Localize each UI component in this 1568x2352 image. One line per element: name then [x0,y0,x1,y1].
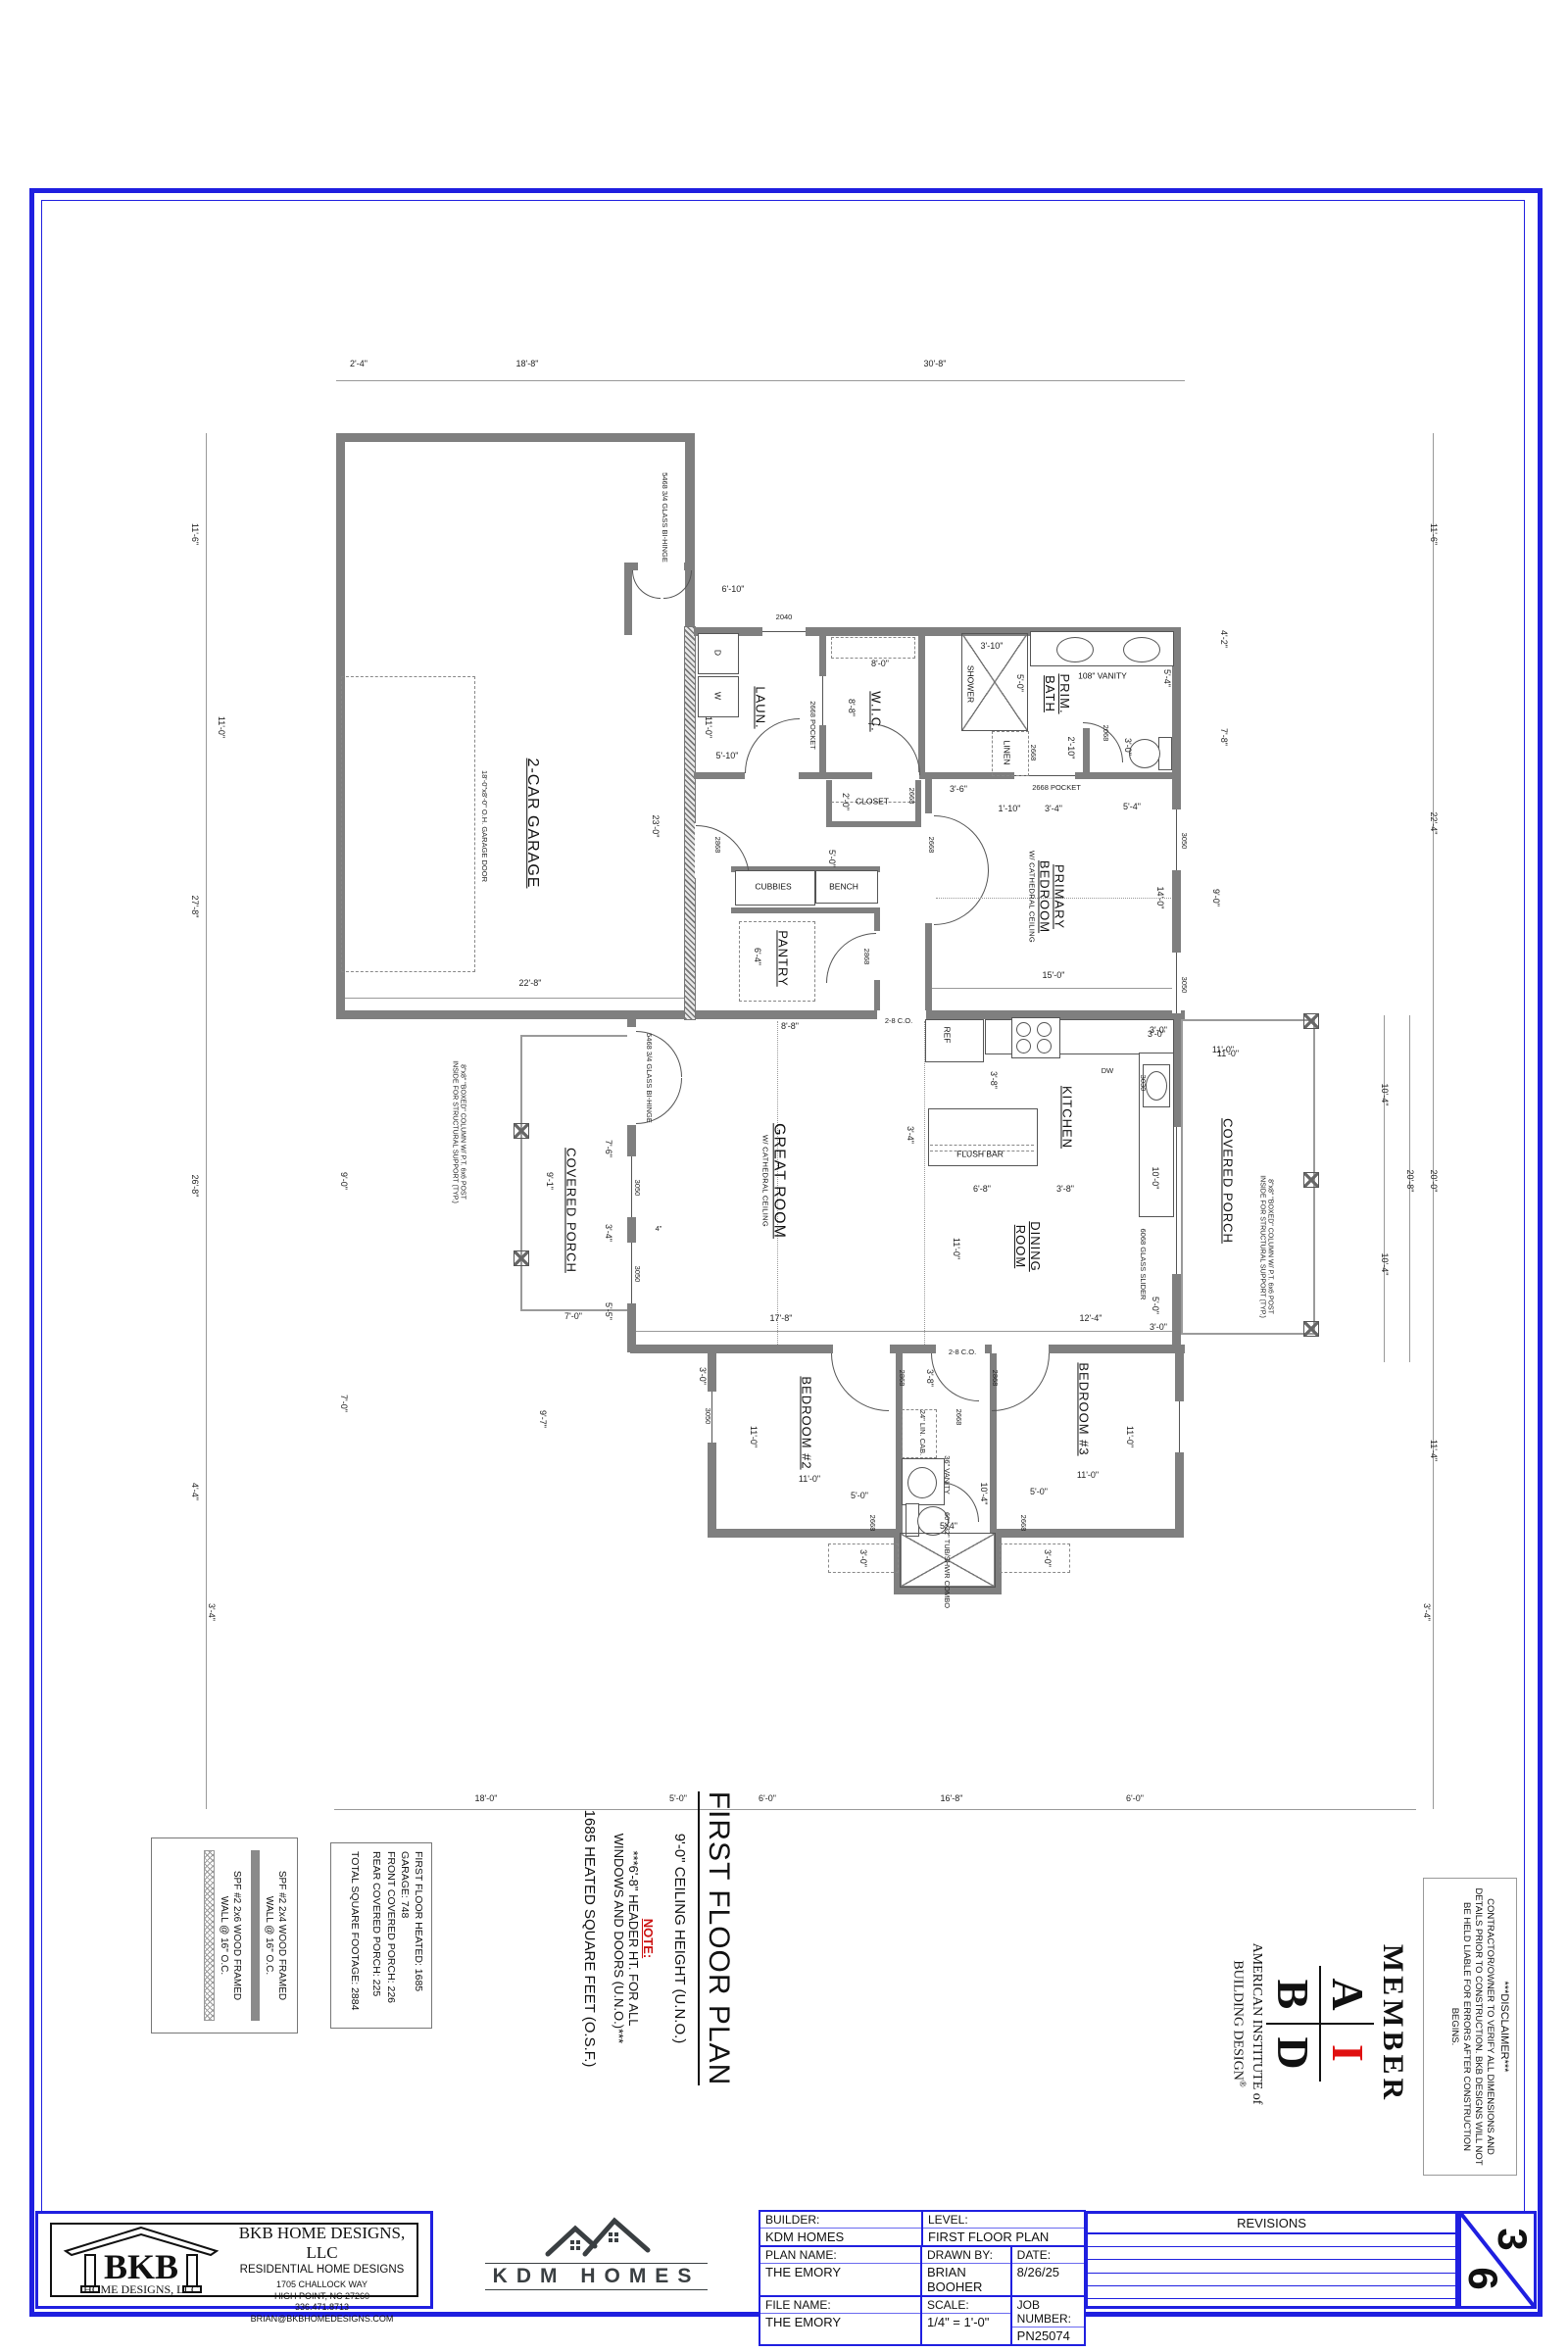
dim-label: 3'-8" [924,1369,934,1387]
fixture-label: D [712,650,721,656]
burner [1016,1022,1031,1037]
dim-line [336,380,1185,381]
legend-swatch-2x6 [204,1850,215,2021]
room-label: BEDROOM #3 [1076,1362,1091,1455]
door-opening [833,1345,890,1353]
door-swing [831,1353,889,1411]
sink [907,1467,937,1498]
dim-label: 6'-0" [759,1794,776,1804]
svg-text:HOME DESIGNS, LLC: HOME DESIGNS, LLC [83,2282,199,2296]
dim-label: 5'-0" [1150,1297,1159,1314]
sqft-line: FRONT COVERED PORCH: 226 [383,1851,397,2020]
ceiling-break [924,1021,925,1345]
room-label: 2-CAR GARAGE [523,759,541,889]
drawn-by-label: DRAWN BY: [922,2247,1010,2264]
registered-mark: ® [1238,2081,1248,2087]
dim-label: 5'-0" [826,850,836,867]
dim-label: 3050 [1180,833,1188,850]
revision-row [1088,2274,1455,2286]
revision-row [1088,2260,1455,2273]
dim-label: 2040 [776,613,793,621]
legend-item: SPF #2 2x6 WOOD FRAMEDWALL @ 16" O.C. [204,1850,242,2021]
revision-row [1088,2286,1455,2299]
dim-label: 8'-8" [781,1022,799,1032]
dim-label: 2668 [907,788,915,805]
door-opening [745,772,799,779]
sheet-number-current: 3 [1489,2228,1536,2250]
dim-label: 14'-0" [1154,887,1164,909]
bkb-tagline: RESIDENTIAL HOME DESIGNS [229,2264,415,2276]
fixture-label: FLUSH BAR [956,1150,1004,1158]
burner [1016,1039,1031,1053]
rear-stoop [1000,1543,1070,1573]
aibd-letter-grid: AI BD [1266,1966,1374,2082]
dim-label: 4" [656,1225,662,1233]
sheet-number-total: 6 [1459,2267,1506,2289]
dim-label: 7'-0" [564,1312,582,1322]
dim-label: 3'-4" [1421,1603,1431,1621]
burner [1037,1039,1052,1053]
dim-label: 2668 POCKET [1032,784,1081,792]
wall [685,433,695,629]
dim-label: 6'-4" [752,948,761,965]
revision-row [1088,2234,1455,2247]
dim-label: 2'-10" [1065,737,1075,759]
window [1175,1401,1184,1452]
disclaimer-title: ***DISCLAIMER*** [1498,1886,1510,2167]
dim-label: 24" LIN. CAB. [918,1410,926,1455]
fixture-label: W [712,692,721,700]
dim-label: 2'-4" [350,360,367,369]
dim-label: 2-8 C.O. [885,1017,912,1025]
dim-label: 5468 3/4 GLASS BI-HINGE [645,1033,653,1123]
porch-column [1303,1172,1319,1188]
dim-label: 4'-2" [1218,630,1228,648]
dim-label: 2868 [862,949,870,965]
dim-label: 11'-6" [189,523,199,545]
dim-label: 10'-4" [1379,1084,1389,1106]
dim-line [336,998,686,999]
wall [336,433,693,442]
dim-label: 3'-0" [697,1367,707,1385]
dim-label: 22'-4" [1428,812,1438,835]
disclaimer-box: ***DISCLAIMER*** CONTRACTOR/OWNER TO VER… [1423,1878,1517,2176]
builder-cell: BUILDER: KDM HOMES [759,2210,923,2247]
porch-column [514,1123,529,1139]
window-2040 [762,627,806,636]
dim-label: 10'-0" [1150,1167,1159,1190]
dim-label: 11'-0" [1212,1046,1234,1055]
fixture-label: SHOWER [965,665,974,703]
disclaimer-body: CONTRACTOR/OWNER TO VERIFY ALL DIMENSION… [1449,1886,1496,2167]
dim-label: 16'-8" [941,1794,963,1804]
dim-label: 9'-7" [537,1410,547,1428]
room-label: COVERED PORCH [1220,1118,1235,1244]
file-name-cell: FILE NAME: THE EMORY [759,2295,922,2346]
job-number-label: JOB NUMBER: [1012,2297,1084,2327]
dim-label: 3050 [633,1180,641,1197]
dim-label: 3'-0" [1122,738,1132,756]
legend-label: SPF #2 2x6 WOOD FRAMEDWALL @ 16" O.C. [218,1850,242,2021]
floor-plan: 2-CAR GARAGELAUN.W.I.C.PRIM.BATHPRIMARYB… [0,0,1568,1862]
room-label: KITCHEN [1059,1086,1074,1149]
note-label: NOTE: [641,1762,656,2115]
kdm-homes-name: KDM HOMES [485,2263,709,2290]
ceiling-height-note: 9'-0" CEILING HEIGHT (U.N.O.) [671,1762,688,2115]
room-label: DININGROOM [1012,1221,1042,1272]
sqft-total: TOTAL SQUARE FOOTAGE: 2884 [348,1851,362,2020]
sqft-line: REAR COVERED PORCH: 225 [369,1851,383,2020]
aibd-letter-i: I [1320,2024,1374,2082]
dim-label: 11'-4" [1428,1440,1438,1461]
covered-porch-outline [1181,1019,1315,1335]
date-cell: DATE: 8/26/25 [1010,2245,1086,2297]
dim-label: 2868 [991,1370,999,1387]
dim-label: 3'-0" [1042,1549,1052,1567]
header-note: ***6'-8" HEADER HT. FOR ALL WINDOWS AND … [612,1762,641,2115]
drawn-by-cell: DRAWN BY: BRIAN BOOHER [920,2245,1012,2297]
sink [1056,637,1094,662]
aibd-letter-a: A [1320,1966,1374,2024]
dim-line [1384,1015,1385,1362]
pocket-door [819,676,826,725]
wall [918,627,925,779]
file-name-value: THE EMORY [760,2314,920,2344]
fixture-label: CUBBIES [755,882,791,891]
door-opening [627,1027,636,1125]
sqft-line: FIRST FLOOR HEATED: 1685 [412,1851,425,2020]
job-number-value: PN25074 [1012,2327,1084,2344]
square-footage-box: FIRST FLOOR HEATED: 1685 GARAGE: 748 FRO… [330,1842,432,2029]
dim-label: 3'-0" [1150,1323,1167,1333]
dim-line [1433,433,1434,1809]
dim-label: 5'-4" [1123,803,1141,812]
dim-label: 5'-5" [603,1302,612,1320]
plan-title: FIRST FLOOR PLAN [698,1791,735,2086]
dim-label: 12'-4" [1080,1314,1102,1324]
legend-swatch-2x4 [251,1850,260,2021]
aibd-org-name: AMERICAN INSTITUTE ofBUILDING DESIGN® [1229,1901,1264,2146]
dim-label: 27'-8" [189,896,199,918]
kdm-homes-icon [538,2217,656,2258]
dim-label: 7'-8" [1218,728,1228,746]
sqft-line: GARAGE: 748 [398,1851,412,2020]
porch-column [1303,1013,1319,1029]
flush-bar-overhang [930,1145,1034,1146]
dim-label: 5'-0" [1014,674,1024,692]
dim-label: 3'-8" [1056,1185,1074,1195]
dim-label: 11'-0" [216,716,225,738]
wall [826,821,921,827]
dim-label: 2-8 C.O. [949,1348,976,1356]
dim-label: 10'-4" [1379,1253,1389,1276]
dim-label: 17'-8" [770,1314,793,1324]
sheet-number-box: 3 6 [1458,2211,1537,2309]
revision-row [1088,2299,1455,2311]
dim-label: 2'-0" [840,793,850,810]
dim-label: 3'-6" [950,785,967,795]
date-label: DATE: [1012,2247,1084,2264]
plan-title-block: FIRST FLOOR PLAN 9'-0" CEILING HEIGHT (U… [490,1762,735,2115]
bkb-logo-icon: BKB HOME DESIGNS, LLC [58,2226,224,2296]
dim-label: 5'-0" [1030,1488,1048,1497]
dim-label: 2668 [1029,745,1037,761]
wall-2x6 [685,627,695,1019]
scale-label: SCALE: [922,2297,1010,2314]
sink [1146,1071,1167,1101]
svg-text:BKB: BKB [104,2247,178,2286]
dim-label: 11'-0" [951,1238,960,1259]
plan-name-label: PLAN NAME: [760,2247,920,2264]
dim-label: 8'-0" [871,660,889,669]
wall [731,907,880,913]
dim-label: 11'-0" [748,1426,758,1447]
dim-label: 9'-1" [544,1172,554,1190]
dim-label: 3050 [704,1408,711,1425]
dim-label: 6068 GLASS SLIDER [1139,1229,1147,1300]
door-swing [636,1078,682,1124]
dim-label: 9'-0" [338,1172,348,1190]
dim-label: 6'-8" [973,1185,991,1195]
level-cell: LEVEL: FIRST FLOOR PLAN [921,2210,1086,2247]
aibd-member-text: MEMBER [1376,1901,1409,2146]
dim-label: 10'-4" [978,1483,988,1505]
dim-label: 3050 [1180,977,1188,994]
dim-label: 3030 [1139,1075,1147,1092]
refrigerator [925,1019,984,1062]
wall [826,780,832,827]
room-label: BEDROOM #2 [799,1376,813,1469]
builder-value: KDM HOMES [760,2229,921,2245]
door-swing [931,1353,979,1401]
bkb-company: BKB HOME DESIGNS, LLC [229,2224,415,2263]
legend-item: SPF #2 2x4 WOOD FRAMEDWALL @ 16" O.C. [251,1850,287,2021]
room-label: PRIMARYBEDROOMW/ CATHEDRAL CEILING [1028,851,1066,943]
dim-label: 22'-8" [519,979,542,989]
aibd-letter-b: B [1266,1966,1320,2024]
dim-label: 1'-10" [999,805,1021,814]
dim-label: 11'-0" [1077,1471,1099,1481]
dim-label: 20'-8" [1404,1170,1414,1193]
door-opening [992,1345,1049,1353]
dim-label: 3'-10" [981,642,1004,652]
wall [684,563,695,570]
dim-label: 23'-0" [650,815,660,838]
dim-label: 3'-4" [905,1126,914,1144]
date-value: 8/26/25 [1012,2264,1084,2295]
door-swing [934,815,989,870]
dim-label: 36" VANITY [943,1455,951,1494]
burner [1037,1022,1052,1037]
dim-label: 5'-4" [1161,669,1171,687]
aibd-member-logo: MEMBER AI BD AMERICAN INSTITUTE ofBUILDI… [1174,1901,1409,2146]
garage-door [341,676,475,972]
dim-label: 3'-4" [1045,805,1062,814]
dim-label: 7'-6" [603,1140,612,1157]
drawn-by-value: BRIAN BOOHER [922,2264,1010,2295]
dim-label: 2868 [713,837,721,854]
dim-label: 18'-8" [516,360,539,369]
room-label: PRIM.BATH [1042,673,1071,713]
dim-label: 3'-8" [988,1071,998,1089]
dim-label: 4'-4" [189,1483,199,1500]
dim-label: 2668 [955,1409,962,1426]
heated-sqft-note: 1685 HEATED SQUARE FEET (O.S.F.) [581,1762,598,2115]
wall-legend: SPF #2 2x4 WOOD FRAMEDWALL @ 16" O.C. SP… [151,1837,298,2033]
bkb-contact: BKB HOME DESIGNS, LLC RESIDENTIAL HOME D… [229,2224,415,2326]
dim-label: 18'-0"x8'-0" O.H. GARAGE DOOR [480,770,488,882]
dim-label: 2668 [868,1515,876,1532]
room-label: W.I.C. [868,691,883,731]
dim-label: 5'-10" [716,752,739,761]
door-swing [636,1031,682,1077]
project-info-grid: BUILDER: KDM HOMES LEVEL: FIRST FLOOR PL… [759,2211,1085,2309]
closet-shelf [831,637,915,659]
revision-row [1088,2247,1455,2260]
porch-column [514,1250,529,1266]
dim-label: 3'-4" [603,1224,612,1242]
legend-label: SPF #2 2x4 WOOD FRAMEDWALL @ 16" O.C. [263,1850,287,2021]
dim-label: 11'-6" [1428,523,1438,545]
dim-label: DW [1102,1067,1114,1075]
scale-cell: SCALE: 1/4" = 1'-0" [920,2295,1012,2346]
dim-label: 8'-8" [846,699,856,716]
scale-value: 1/4" = 1'-0" [922,2314,1010,2344]
kdm-logo-block: KDM HOMES [433,2211,759,2309]
dim-label: 6'-0" [1126,1794,1144,1804]
dim-label: 9'-0" [1210,889,1220,906]
dim-label: 5468 3/4 GLASS BI-HINGE [661,472,668,563]
plan-name-value: THE EMORY [760,2264,920,2295]
revisions-header: REVISIONS [1088,2214,1455,2234]
dim-label: 3'-0" [1150,1026,1167,1036]
dim-label: 8"x8" "BOXED" COLUMN W/ P.T. 6x6 POST IN… [451,1058,465,1205]
dim-label: 20'-0" [1428,1170,1438,1193]
sink [1123,637,1160,662]
dim-label: 2868 [898,1370,906,1387]
toilet-bowl [1129,739,1160,768]
dim-label: 3'-0" [857,1549,867,1567]
dim-label: 2668 [927,837,935,854]
file-name-label: FILE NAME: [760,2297,920,2314]
room-label: COVERED PORCH [563,1148,578,1273]
fixture-label: 108" VANITY [1078,671,1127,680]
dim-label: 2668 POCKET [808,701,816,750]
level-label: LEVEL: [923,2212,1084,2229]
fixture-label: REF [942,1027,951,1044]
dim-label: 6'-10" [722,585,745,595]
dim-label: 8"x8" "BOXED" COLUMN W/ P.T. 6x6 POST IN… [1258,1173,1273,1320]
fixture-label: LINEN [1002,740,1010,764]
bkb-address: 1705 CHALLOCK WAY HIGH POINT, NC 27260 3… [229,2279,415,2326]
dim-label: 3050 [633,1266,641,1283]
dim-label: 11'-0" [799,1475,820,1485]
dim-line [630,1331,1181,1332]
revisions-block: REVISIONS [1085,2211,1458,2309]
door-swing [992,1353,1050,1411]
level-value: FIRST FLOOR PLAN [923,2229,1084,2245]
dim-label: 7'-0" [338,1395,348,1412]
dim-label: 2068 [1102,725,1109,742]
dim-label: 11'-0" [1124,1426,1134,1447]
builder-label: BUILDER: [760,2212,921,2229]
fixture-label: CLOSET [856,797,889,806]
toilet-tank [1158,737,1172,770]
bkb-title-block: BKB HOME DESIGNS, LLC BKB HOME DESIGNS, … [35,2211,433,2309]
dim-label: 15'-0" [1043,971,1065,981]
room-label: LAUN. [753,686,767,728]
drawing-sheet: 2-CAR GARAGELAUN.W.I.C.PRIM.BATHPRIMARYB… [0,0,1568,2352]
wall [624,563,638,570]
room-label: GREAT ROOMW/ CATHEDRAL CEILING [760,1123,787,1239]
door-swing [632,570,661,599]
porch-column [1303,1321,1319,1337]
dim-label: 60"x32" TUB/SHWR COMBO [943,1512,951,1608]
door-opening [925,813,932,923]
dim-label: 5'-0" [851,1492,868,1501]
dim-line [931,988,1175,989]
dim-label: 30'-8" [924,360,947,369]
plan-name-cell: PLAN NAME: THE EMORY [759,2245,922,2297]
fixture-label: BENCH [829,882,858,891]
room-label: PANTRY [775,930,790,987]
wall [624,563,632,635]
dim-label: 2668 [1019,1515,1027,1532]
dim-label: 26'-8" [189,1175,199,1198]
job-number-cell: JOB NUMBER: PN25074 [1010,2295,1086,2346]
dim-label: 3'-4" [206,1603,216,1621]
dim-label: 11'-0" [703,716,712,738]
aibd-letter-d: D [1266,2024,1320,2082]
